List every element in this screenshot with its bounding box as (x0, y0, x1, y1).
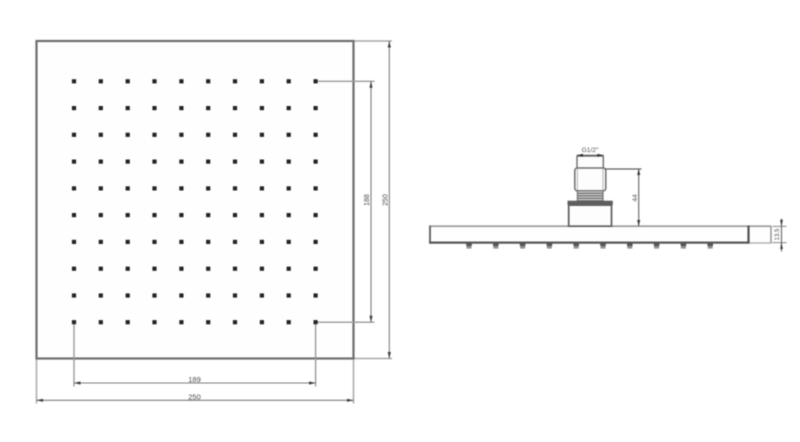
svg-text:250: 250 (383, 194, 390, 206)
svg-text:189: 189 (188, 375, 201, 384)
svg-text:188: 188 (364, 194, 371, 206)
svg-text:G1/2″: G1/2″ (582, 147, 599, 154)
svg-text:44: 44 (632, 194, 639, 202)
svg-text:250: 250 (188, 392, 201, 401)
svg-text:13.5: 13.5 (775, 228, 781, 240)
